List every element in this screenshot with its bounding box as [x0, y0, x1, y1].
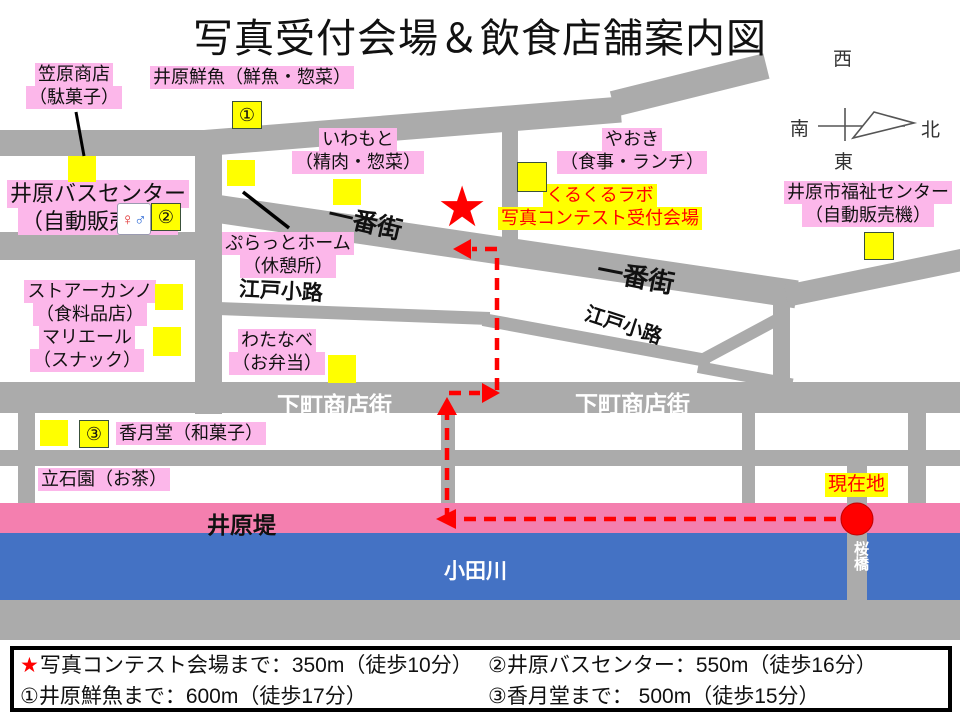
toilet-female-icon: ♀: [121, 211, 134, 228]
label-fukushi-center-line1: 井原市福祉センター: [784, 181, 952, 204]
marker-mariere: [153, 327, 181, 356]
marker-kagetsudo: [40, 420, 68, 446]
label-store-kanno-line1: ストアーカンノ: [24, 280, 155, 303]
road-junction-vertical: [773, 300, 790, 386]
label-store-kanno: ストアーカンノ （食料品店）: [20, 280, 160, 326]
label-mariere-line2: （スナック）: [30, 349, 144, 372]
label-tateishien: 立石園（お茶）: [38, 468, 170, 491]
label-mariere: マリエール （スナック）: [17, 326, 157, 372]
embankment-name: 井原堤: [207, 506, 276, 540]
legend-item-bus-center: ②井原バスセンター：550m（徒歩16分）: [488, 649, 948, 679]
label-ihara-sengyo-line1: 井原鮮魚（鮮魚・惣菜）: [150, 66, 354, 89]
label-kagetsudo-line1: 香月堂（和菓子）: [116, 422, 266, 445]
marker-yaoki: [517, 162, 547, 192]
marker-number-3: ③: [79, 420, 109, 448]
label-venue-line2: 写真コンテスト受付会場: [498, 207, 702, 230]
marker-watanabe: [328, 355, 356, 383]
venue-star-icon: ★: [437, 179, 487, 235]
compass-needle-icon: [853, 112, 914, 138]
road-edokoji-west: [218, 302, 490, 325]
embankment-band: [0, 503, 960, 533]
toilet-male-icon: ♂: [134, 211, 147, 228]
legend-item-venue: ★写真コンテスト会場まで：350m（徒歩10分）: [20, 649, 488, 679]
road-shitamachi: [0, 382, 960, 413]
roadname-shitamachi-2: 下町商店街: [575, 385, 690, 419]
compass-east: 東: [834, 147, 853, 174]
river-name: 小田川: [444, 555, 507, 585]
marker-fukushi-center: [864, 232, 894, 260]
label-watanabe-line1: わたなべ: [238, 329, 316, 352]
label-current-location: 現在地: [825, 473, 888, 497]
label-iwamoto-line1: いわもと: [319, 128, 397, 151]
marker-kasahara: [68, 156, 96, 182]
marker-number-1: ①: [232, 101, 262, 129]
legend-box: ★写真コンテスト会場まで：350m（徒歩10分） ②井原バスセンター：550m（…: [10, 646, 952, 712]
marker-store-kanno: [155, 284, 183, 310]
label-kasahara-line2: （駄菓子）: [26, 86, 122, 109]
road-top-left: [0, 130, 222, 156]
label-kasahara-line1: 笠原商店: [35, 63, 113, 86]
label-tateishien-line1: 立石園（お茶）: [38, 468, 170, 491]
road-lower-vert-4: [908, 413, 926, 503]
label-watanabe-line2: （お弁当）: [229, 352, 325, 375]
label-iwamoto-line2: （精肉・惣菜）: [292, 151, 424, 174]
legend-venue-distance: 写真コンテスト会場まで：350m（徒歩10分）: [40, 654, 473, 677]
roadname-shitamachi-1: 下町商店街: [277, 386, 392, 420]
label-ihara-sengyo: 井原鮮魚（鮮魚・惣菜）: [150, 66, 354, 89]
current-location-text: 現在地: [825, 473, 888, 497]
road-lower-vert-2: [441, 413, 455, 503]
south-bank-strip: [0, 600, 960, 640]
label-yaoki-line1: やおき: [602, 128, 662, 151]
label-fukushi-center: 井原市福祉センター （自動販売機）: [782, 181, 954, 227]
bridge-name: 桜橋: [850, 541, 871, 571]
label-yaoki: やおき （食事・ランチ）: [557, 128, 707, 174]
legend-star-icon: ★: [20, 654, 39, 677]
marker-puratto-home: [227, 160, 255, 186]
label-mariere-line1: マリエール: [39, 326, 135, 349]
marker-number-2: ②: [151, 203, 181, 231]
label-puratto-home: ぷらっとホーム （休憩所）: [217, 232, 359, 278]
road-mid-left: [0, 232, 222, 260]
label-fukushi-center-line2: （自動販売機）: [802, 204, 934, 227]
road-lower-horizontal: [0, 450, 960, 466]
label-puratto-home-line1: ぷらっとホーム: [222, 232, 353, 255]
compass-west: 西: [833, 44, 852, 71]
label-yaoki-line2: （食事・ランチ）: [557, 151, 707, 174]
page-title: 写真受付会場＆飲食店舗案内図: [0, 6, 960, 64]
roadname-ichibangai-2: 一番街: [594, 250, 678, 301]
road-lower-vert-1: [18, 413, 35, 503]
label-puratto-home-line2: （休憩所）: [240, 255, 336, 278]
compass-north: 北: [921, 115, 940, 142]
label-watanabe: わたなべ （お弁当）: [206, 329, 348, 375]
marker-iwamoto: [333, 179, 361, 205]
label-venue-line1: くるくるラボ: [543, 184, 656, 207]
label-kagetsudo: 香月堂（和菓子）: [116, 422, 266, 445]
road-lower-vert-3: [742, 413, 755, 503]
toilet-icon: ♀ ♂: [117, 203, 151, 235]
label-kasahara: 笠原商店 （駄菓子）: [18, 63, 130, 109]
legend-item-ihara-sengyo: ①井原鮮魚まで：600m（徒歩17分）: [20, 680, 488, 710]
compass-south: 南: [790, 114, 809, 141]
legend-item-kagetsudo: ③香月堂まで： 500m（徒歩15分）: [488, 680, 948, 710]
label-store-kanno-line2: （食料品店）: [33, 303, 147, 326]
map-canvas: 写真受付会場＆飲食店舗案内図 一番街 一番街 江戸小路 江戸小路 下町商店街 下…: [0, 0, 960, 720]
label-iwamoto: いわもと （精肉・惣菜）: [287, 128, 429, 174]
